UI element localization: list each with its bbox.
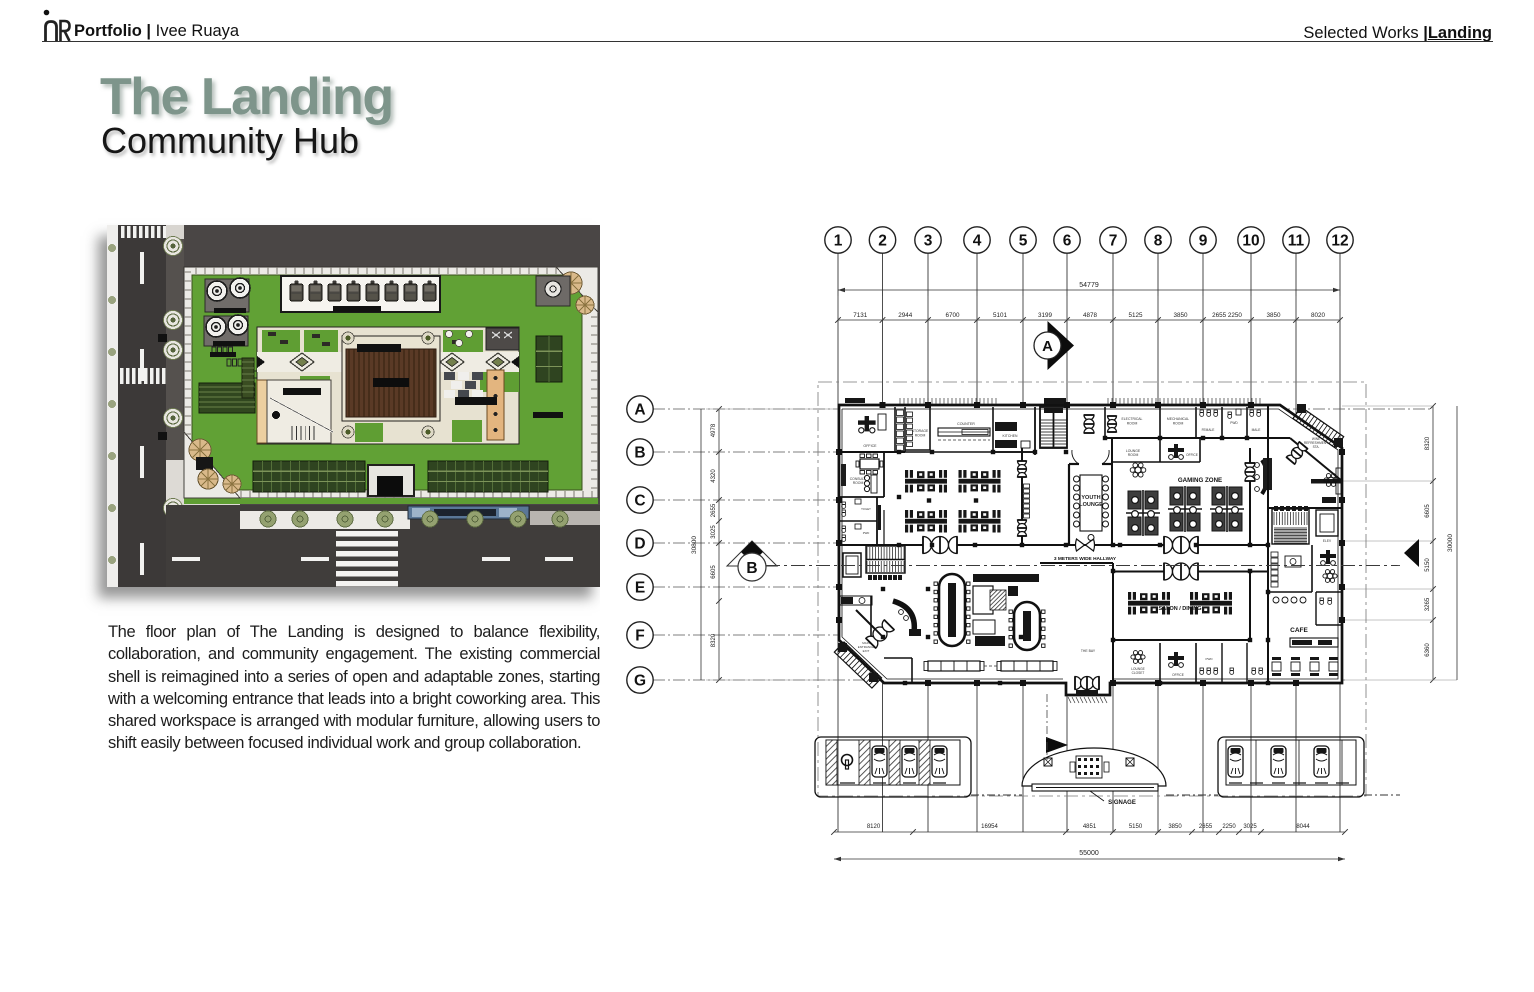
svg-text:10: 10 — [1242, 233, 1259, 250]
svg-text:MALE: MALE — [1252, 428, 1261, 432]
svg-text:CLOSET: CLOSET — [1132, 671, 1145, 675]
svg-text:6700: 6700 — [945, 312, 960, 319]
svg-text:8320: 8320 — [1425, 436, 1431, 450]
svg-text:4978: 4978 — [711, 423, 717, 437]
svg-text:5: 5 — [1019, 233, 1028, 250]
svg-text:3025: 3025 — [1243, 824, 1257, 830]
svg-text:STORAGE: STORAGE — [912, 429, 929, 433]
svg-text:TOILET: TOILET — [861, 507, 871, 511]
svg-text:4320: 4320 — [711, 469, 717, 483]
svg-text:ROOM: ROOM — [1173, 422, 1184, 426]
svg-text:2655: 2655 — [711, 503, 717, 517]
svg-text:LOUNGE: LOUNGE — [1079, 502, 1103, 508]
svg-text:8: 8 — [1154, 233, 1163, 250]
svg-text:30000: 30000 — [1447, 534, 1454, 552]
svg-text:OFFICE: OFFICE — [863, 444, 877, 448]
svg-text:11: 11 — [1288, 233, 1305, 250]
svg-text:SALON / DINING: SALON / DINING — [1158, 606, 1201, 612]
svg-text:30800: 30800 — [691, 536, 698, 554]
svg-text:ROOM: ROOM — [853, 481, 864, 485]
svg-text:8120: 8120 — [867, 824, 881, 830]
svg-text:6605: 6605 — [1425, 504, 1431, 518]
svg-text:ROOM: ROOM — [1127, 422, 1138, 426]
svg-text:12: 12 — [1331, 233, 1348, 250]
svg-text:2655 2250: 2655 2250 — [1212, 312, 1242, 319]
svg-text:PWD: PWD — [1206, 657, 1214, 661]
svg-text:PWD: PWD — [1230, 421, 1238, 425]
svg-text:3: 3 — [924, 233, 933, 250]
svg-text:2944: 2944 — [898, 312, 913, 319]
svg-text:3 METERS WIDE HALLWAY: 3 METERS WIDE HALLWAY — [1054, 556, 1117, 562]
svg-text:2: 2 — [878, 233, 887, 250]
svg-text:3850: 3850 — [1173, 312, 1188, 319]
svg-text:8020: 8020 — [1311, 312, 1326, 319]
svg-text:THE BAY: THE BAY — [1081, 649, 1096, 653]
svg-text:4878: 4878 — [1083, 312, 1098, 319]
svg-text:OFFICE: OFFICE — [1186, 453, 1198, 457]
svg-text:7131: 7131 — [853, 312, 868, 319]
svg-text:3025: 3025 — [711, 525, 717, 539]
svg-text:2655: 2655 — [1199, 824, 1213, 830]
svg-text:5150: 5150 — [1425, 558, 1431, 572]
svg-text:6605: 6605 — [711, 565, 717, 579]
svg-text:GAMING ZONE: GAMING ZONE — [1178, 477, 1222, 484]
svg-text:6: 6 — [1063, 233, 1072, 250]
svg-text:A: A — [634, 402, 645, 419]
svg-text:4: 4 — [973, 233, 982, 250]
svg-text:4851: 4851 — [1083, 824, 1097, 830]
svg-text:ELECTRICAL: ELECTRICAL — [1122, 417, 1143, 421]
svg-text:A: A — [1042, 338, 1053, 355]
svg-text:5150: 5150 — [1129, 824, 1143, 830]
svg-text:8044: 8044 — [1296, 824, 1310, 830]
svg-text:9: 9 — [1199, 233, 1208, 250]
svg-text:EXIT: EXIT — [863, 649, 870, 653]
svg-text:3265: 3265 — [1425, 597, 1431, 611]
svg-text:D: D — [634, 536, 645, 553]
svg-text:54779: 54779 — [1079, 282, 1099, 289]
svg-text:OFFICE: OFFICE — [1172, 673, 1184, 677]
svg-text:B: B — [746, 560, 757, 577]
svg-text:F: F — [635, 628, 644, 645]
svg-text:MECHANICAL: MECHANICAL — [1167, 417, 1189, 421]
svg-text:7: 7 — [1109, 233, 1118, 250]
svg-text:3850: 3850 — [1168, 824, 1182, 830]
svg-text:KITCHEN: KITCHEN — [1003, 434, 1018, 438]
svg-text:FEMALE: FEMALE — [1202, 428, 1215, 432]
svg-text:1: 1 — [834, 233, 843, 250]
svg-text:8320: 8320 — [711, 633, 717, 647]
svg-text:PWD: PWD — [863, 531, 870, 535]
svg-text:B: B — [634, 445, 645, 462]
svg-text:CAFE: CAFE — [1290, 627, 1308, 634]
svg-text:3199: 3199 — [1038, 312, 1053, 319]
svg-text:5101: 5101 — [993, 312, 1008, 319]
svg-text:6360: 6360 — [1425, 643, 1431, 657]
svg-text:3850: 3850 — [1266, 312, 1281, 319]
svg-text:ROOM: ROOM — [915, 434, 926, 438]
svg-text:COUNTER: COUNTER — [957, 422, 975, 426]
svg-text:16954: 16954 — [981, 824, 998, 830]
svg-text:YOUTH: YOUTH — [1081, 495, 1100, 501]
svg-text:5125: 5125 — [1128, 312, 1143, 319]
svg-text:SIGNAGE: SIGNAGE — [1108, 800, 1136, 806]
svg-text:STA.: STA. — [1313, 445, 1320, 449]
svg-text:ROOM: ROOM — [1128, 453, 1139, 457]
svg-text:ELEV: ELEV — [1323, 539, 1332, 543]
svg-text:2250: 2250 — [1222, 824, 1236, 830]
svg-text:C: C — [634, 493, 645, 510]
svg-text:E: E — [635, 580, 645, 597]
svg-text:G: G — [634, 673, 646, 690]
svg-text:55000: 55000 — [1079, 850, 1099, 857]
